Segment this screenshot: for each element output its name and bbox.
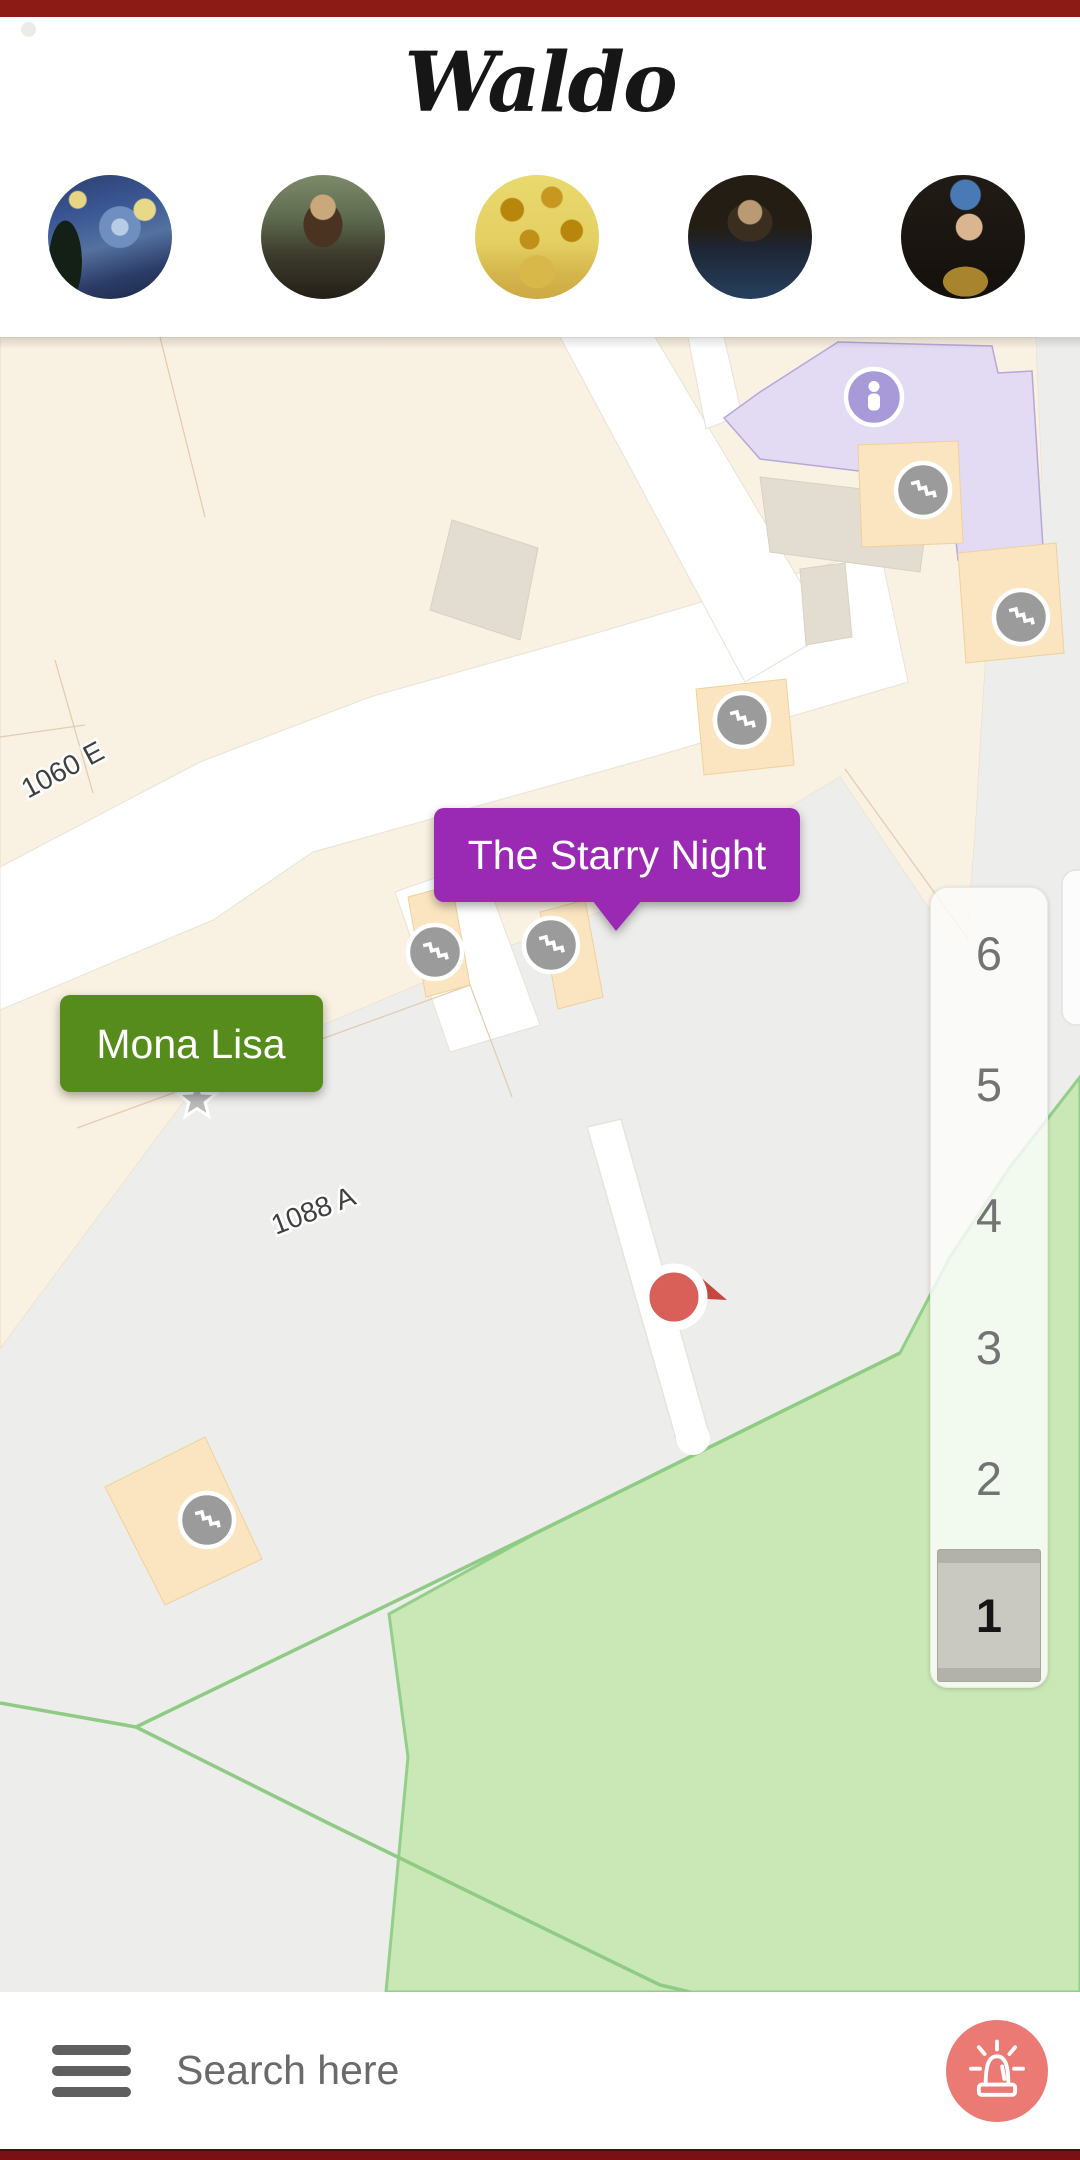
information-person-icon[interactable] [846, 369, 902, 425]
tooltip-mona-lisa[interactable]: Mona Lisa [60, 995, 323, 1092]
artwork-thumbnail-mona-lisa[interactable] [261, 175, 385, 299]
floor-button-6[interactable]: 6 [931, 888, 1047, 1019]
tooltip-mona-lisa-label: Mona Lisa [96, 1021, 285, 1067]
navigation-bar [0, 2149, 1080, 2160]
menu-icon-bar [52, 2045, 131, 2055]
artwork-thumbnail-pearl-earring[interactable] [901, 175, 1025, 299]
menu-icon[interactable] [52, 2045, 131, 2097]
map-canvas: 1060 E 1088 A [0, 337, 1080, 1992]
menu-icon-bar [52, 2087, 131, 2097]
artwork-thumbnail-starry-night[interactable] [48, 175, 172, 299]
search-input[interactable]: Search here [176, 2047, 946, 2094]
stairs-icon[interactable] [524, 918, 578, 972]
app-logo: Waldo [0, 35, 1080, 131]
stairs-icon[interactable] [715, 693, 769, 747]
stairs-icon[interactable] [994, 590, 1048, 644]
artwork-thumbnail-sunflowers[interactable] [475, 175, 599, 299]
status-bar [0, 0, 1080, 17]
app-screen: Waldo [0, 0, 1080, 2160]
floor-button-5[interactable]: 5 [931, 1019, 1047, 1150]
floor-button-2[interactable]: 2 [931, 1413, 1047, 1544]
tooltip-starry-night-label: The Starry Night [468, 832, 767, 878]
alarm-siren-icon [963, 2037, 1031, 2105]
search-bar: Search here [0, 1992, 1080, 2149]
stairs-icon[interactable] [896, 463, 950, 517]
indoor-map[interactable]: 1060 E 1088 A [0, 337, 1080, 1992]
emergency-alarm-button[interactable] [946, 2020, 1048, 2122]
floor-button-1-selected[interactable]: 1 [937, 1549, 1041, 1682]
header: Waldo [0, 17, 1080, 337]
stairs-icon[interactable] [408, 925, 462, 979]
floor-selector: 6 5 4 3 2 1 [930, 887, 1048, 1688]
floor-button-4[interactable]: 4 [931, 1150, 1047, 1281]
stairs-icon[interactable] [180, 1493, 234, 1547]
artwork-thumbnail-row [0, 175, 1080, 299]
map-control-card[interactable] [1062, 870, 1080, 1025]
artwork-thumbnail-salvator-mundi[interactable] [688, 175, 812, 299]
floor-button-3[interactable]: 3 [931, 1282, 1047, 1413]
menu-icon-bar [52, 2066, 131, 2076]
